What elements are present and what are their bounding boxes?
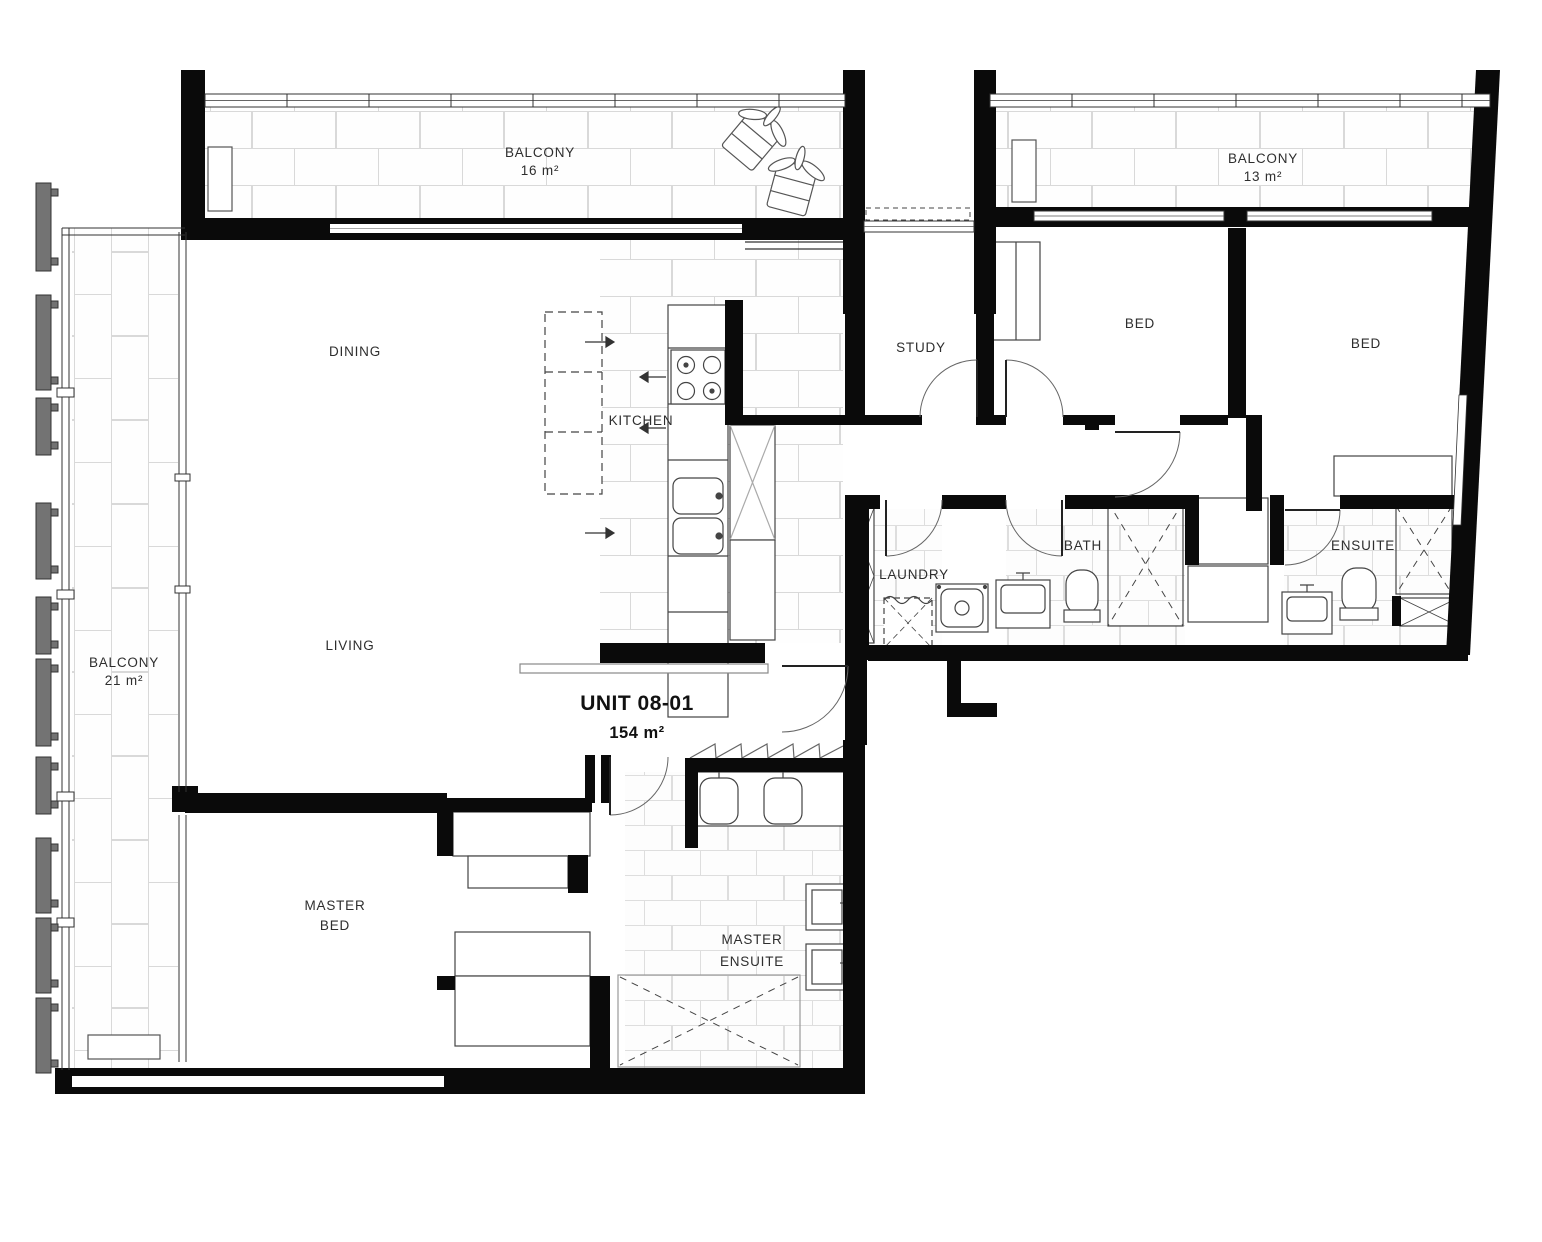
bed-right-desk [1334, 456, 1452, 496]
bath-label: BATH [1064, 538, 1102, 553]
kitchen-label: KITCHEN [609, 413, 674, 428]
kitchen-island [545, 312, 602, 494]
toilet-icon [1066, 570, 1098, 614]
master-bed-label-line1: MASTER [304, 898, 365, 913]
master-bed-wardrobes [453, 812, 590, 1046]
unit-area: 154 m² [609, 724, 664, 742]
bed-right-label: BED [1351, 336, 1381, 351]
master-bed-label-line2: BED [320, 918, 350, 933]
balcony-top-right-area: 13 m² [1244, 169, 1283, 184]
canopy-dashed [866, 208, 970, 220]
study-label: STUDY [896, 340, 946, 355]
master-ensuite-label-line1: MASTER [721, 932, 782, 947]
bath-vanity [996, 580, 1050, 628]
balcony-left-floor [72, 228, 178, 1068]
study-door-arc [920, 360, 977, 417]
planter-box [1012, 140, 1036, 202]
hall-closets [1188, 498, 1268, 622]
floor-plan-page: BALCONY 16 m² BALCONY 13 m² BALCONY 21 m… [0, 0, 1542, 1242]
unit-title: UNIT 08-01 [580, 692, 694, 715]
planter-box [88, 1035, 160, 1059]
bed-right-door-arc [1115, 432, 1180, 497]
floor-plan-canvas: BALCONY 16 m² BALCONY 13 m² BALCONY 21 m… [0, 0, 1542, 1242]
laundry-label: LAUNDRY [879, 567, 949, 582]
balcony-left-area: 21 m² [105, 673, 144, 688]
ensuite-toilet-icon [1342, 568, 1376, 612]
balcony-top-left-area: 16 m² [521, 163, 560, 178]
balcony-left-label: BALCONY [89, 655, 159, 670]
entry-door-arc [782, 666, 848, 732]
ensuite-label: ENSUITE [1331, 538, 1395, 553]
bed-middle-label: BED [1125, 316, 1155, 331]
bed-middle-door-arc [1006, 360, 1063, 417]
balcony-top-left-label: BALCONY [505, 145, 575, 160]
balcony-top-right-label: BALCONY [1228, 151, 1298, 166]
tiled-floors [72, 107, 1484, 1068]
bedroom-furniture [992, 242, 1452, 496]
louvre-fins [36, 183, 58, 1073]
dining-label: DINING [329, 344, 381, 359]
master-ensuite-label-line2: ENSUITE [720, 954, 784, 969]
living-label: LIVING [325, 638, 374, 653]
window-slot [72, 1076, 444, 1087]
planter-box [208, 147, 232, 211]
